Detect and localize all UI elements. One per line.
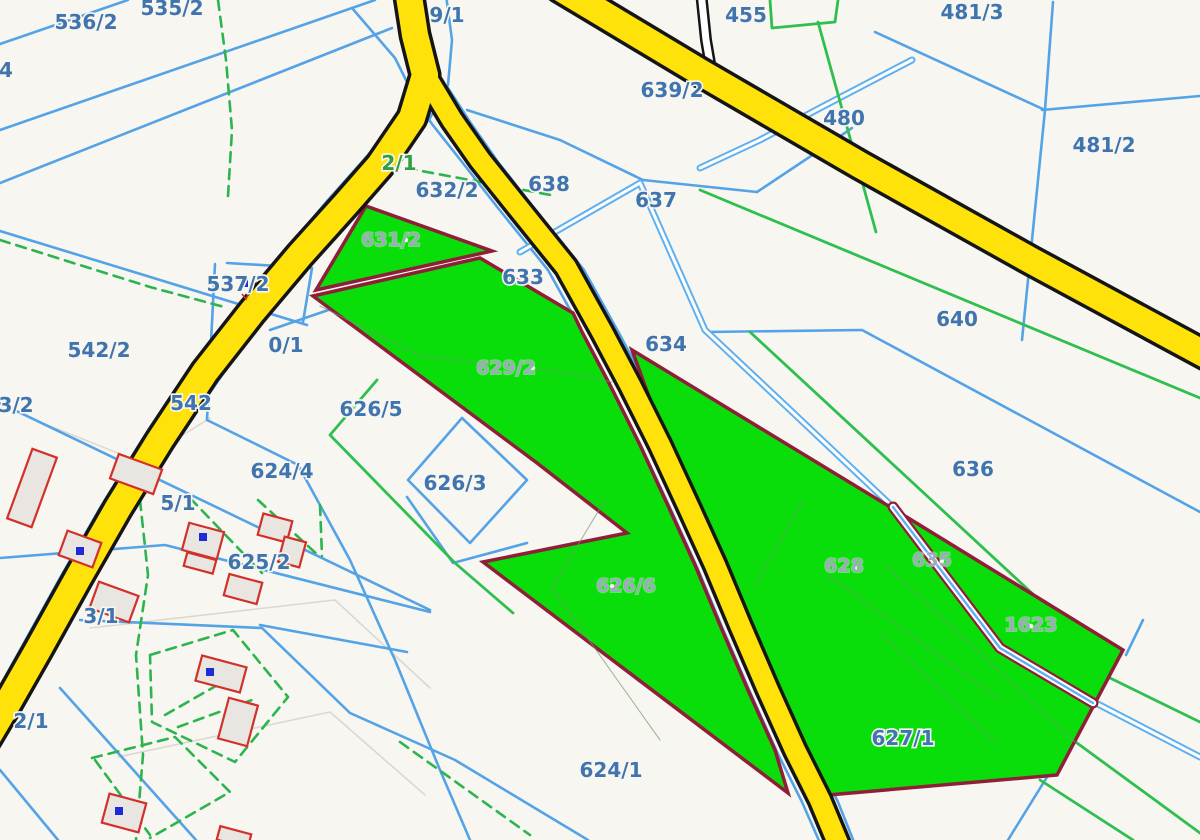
- parcel-label: 624/1: [580, 758, 643, 782]
- building-point-marker: [199, 533, 207, 541]
- parcel-label: 481/3: [941, 0, 1004, 24]
- parcel-label: 535/2: [141, 0, 204, 20]
- parcel-label: 626/5: [340, 397, 403, 421]
- parcel-label: 536/2: [55, 10, 118, 34]
- parcel-label: 2/1: [13, 709, 48, 733]
- parcel-label: 624/4: [251, 459, 314, 483]
- parcel-label: 625/2: [228, 550, 291, 574]
- parcel-label: 636: [952, 457, 994, 481]
- parcel-label: 481/2: [1073, 133, 1136, 157]
- parcel-label: 640: [936, 307, 978, 331]
- building-point-marker: [76, 547, 84, 555]
- parcel-label: 633: [502, 265, 544, 289]
- parcel-label: 455: [725, 3, 767, 27]
- parcel-label: 635: [912, 549, 952, 571]
- parcel-label: 626/6: [596, 575, 656, 597]
- parcel-label: 627/1: [872, 726, 935, 750]
- parcel-label: 3/2: [0, 393, 34, 417]
- cadastral-map-canvas[interactable]: 536/2535/249/1639/2455481/3480481/22/163…: [0, 0, 1200, 840]
- parcel-label: 631/2: [361, 229, 421, 251]
- parcel-label: 537/2: [207, 272, 270, 296]
- parcel-label: 480: [823, 106, 865, 130]
- parcel-label: 634: [645, 332, 687, 356]
- building-point-marker: [115, 807, 123, 815]
- parcel-label: 1623: [1005, 614, 1058, 636]
- parcel-label: 638: [528, 172, 570, 196]
- parcel-label: 542: [170, 391, 212, 415]
- parcel-label: 632/2: [416, 178, 479, 202]
- parcel-label: 0/1: [268, 333, 303, 357]
- parcel-label: 628: [824, 555, 864, 577]
- parcel-label: 4: [0, 58, 13, 82]
- parcel-label: 2/1: [381, 151, 416, 175]
- building-point-marker: [206, 668, 214, 676]
- parcel-label: 629/2: [476, 357, 536, 379]
- parcel-label: 3/1: [83, 604, 118, 628]
- parcel-label: 5/1: [160, 491, 195, 515]
- parcel-label: 639/2: [641, 78, 704, 102]
- map-viewport[interactable]: 536/2535/249/1639/2455481/3480481/22/163…: [0, 0, 1200, 840]
- parcel-label: 9/1: [429, 3, 464, 27]
- parcel-label: 626/3: [424, 471, 487, 495]
- parcel-label: 637: [635, 188, 677, 212]
- parcel-label: 542/2: [68, 338, 131, 362]
